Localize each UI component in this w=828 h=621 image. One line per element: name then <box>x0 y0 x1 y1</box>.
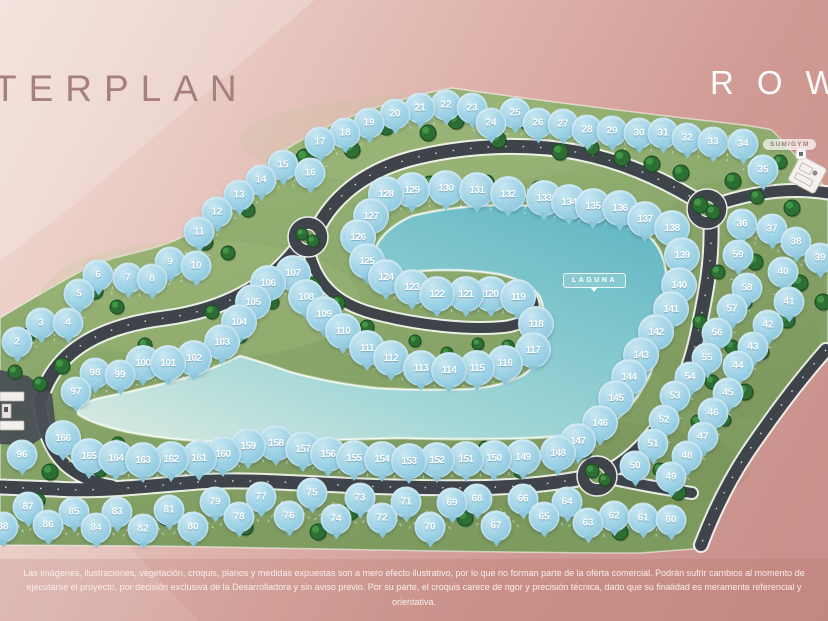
lot-marker-70[interactable]: 70 <box>415 512 446 543</box>
lot-marker-75[interactable]: 75 <box>297 478 328 509</box>
lot-marker-40[interactable]: 40 <box>768 257 799 288</box>
lot-marker-59[interactable]: 59 <box>723 240 754 271</box>
sum-gym-label: SUM/GYM <box>763 139 816 150</box>
amenity-badge-icon <box>796 149 806 159</box>
lot-marker-24[interactable]: 24 <box>476 108 507 139</box>
lot-marker-2[interactable]: 2 <box>2 327 33 358</box>
lot-marker-5[interactable]: 5 <box>64 279 95 310</box>
lot-marker-86[interactable]: 86 <box>33 510 64 541</box>
lot-marker-96[interactable]: 96 <box>7 440 38 471</box>
lot-marker-16[interactable]: 16 <box>295 158 326 189</box>
disclaimer-text: Las imágenes, ilustraciones, vegetación,… <box>4 566 824 609</box>
lot-marker-97[interactable]: 97 <box>61 377 92 408</box>
lot-marker-8[interactable]: 8 <box>137 264 168 295</box>
lot-marker-101[interactable]: 101 <box>150 345 186 381</box>
lot-marker-84[interactable]: 84 <box>81 513 112 544</box>
lot-marker-33[interactable]: 33 <box>698 127 729 158</box>
lot-marker-49[interactable]: 49 <box>656 462 687 493</box>
lot-marker-72[interactable]: 72 <box>367 503 398 534</box>
lot-marker-74[interactable]: 74 <box>321 504 352 535</box>
lot-marker-4[interactable]: 4 <box>53 308 84 339</box>
lot-marker-99[interactable]: 99 <box>105 360 136 391</box>
lot-marker-34[interactable]: 34 <box>728 129 759 160</box>
lot-marker-63[interactable]: 63 <box>573 508 604 539</box>
lot-marker-114[interactable]: 114 <box>431 352 467 388</box>
lot-marker-17[interactable]: 17 <box>305 127 336 158</box>
laguna-label: LAGUNA <box>563 273 626 288</box>
lot-marker-65[interactable]: 65 <box>529 502 560 533</box>
lot-marker-80[interactable]: 80 <box>178 512 209 543</box>
lot-marker-60[interactable]: 60 <box>656 505 687 536</box>
lot-marker-11[interactable]: 11 <box>184 217 215 248</box>
lot-marker-62[interactable]: 62 <box>599 501 630 532</box>
lot-marker-39[interactable]: 39 <box>805 243 828 274</box>
lot-marker-69[interactable]: 69 <box>437 488 468 519</box>
lot-marker-61[interactable]: 61 <box>628 503 659 534</box>
lot-marker-163[interactable]: 163 <box>125 442 161 478</box>
masterplan-screen: TERPLAN ROW <box>0 0 828 621</box>
lot-marker-76[interactable]: 76 <box>274 501 305 532</box>
lot-marker-36[interactable]: 36 <box>727 209 758 240</box>
lot-marker-78[interactable]: 78 <box>224 502 255 533</box>
lot-marker-50[interactable]: 50 <box>620 451 651 482</box>
lot-marker-132[interactable]: 132 <box>490 176 526 212</box>
lot-marker-67[interactable]: 67 <box>481 511 512 542</box>
lot-marker-153[interactable]: 153 <box>391 443 427 479</box>
lot-marker-148[interactable]: 148 <box>540 435 576 471</box>
lot-marker-122[interactable]: 122 <box>419 276 455 312</box>
lot-marker-35[interactable]: 35 <box>748 155 779 186</box>
lot-marker-82[interactable]: 82 <box>128 514 159 545</box>
lot-marker-10[interactable]: 10 <box>181 251 212 282</box>
